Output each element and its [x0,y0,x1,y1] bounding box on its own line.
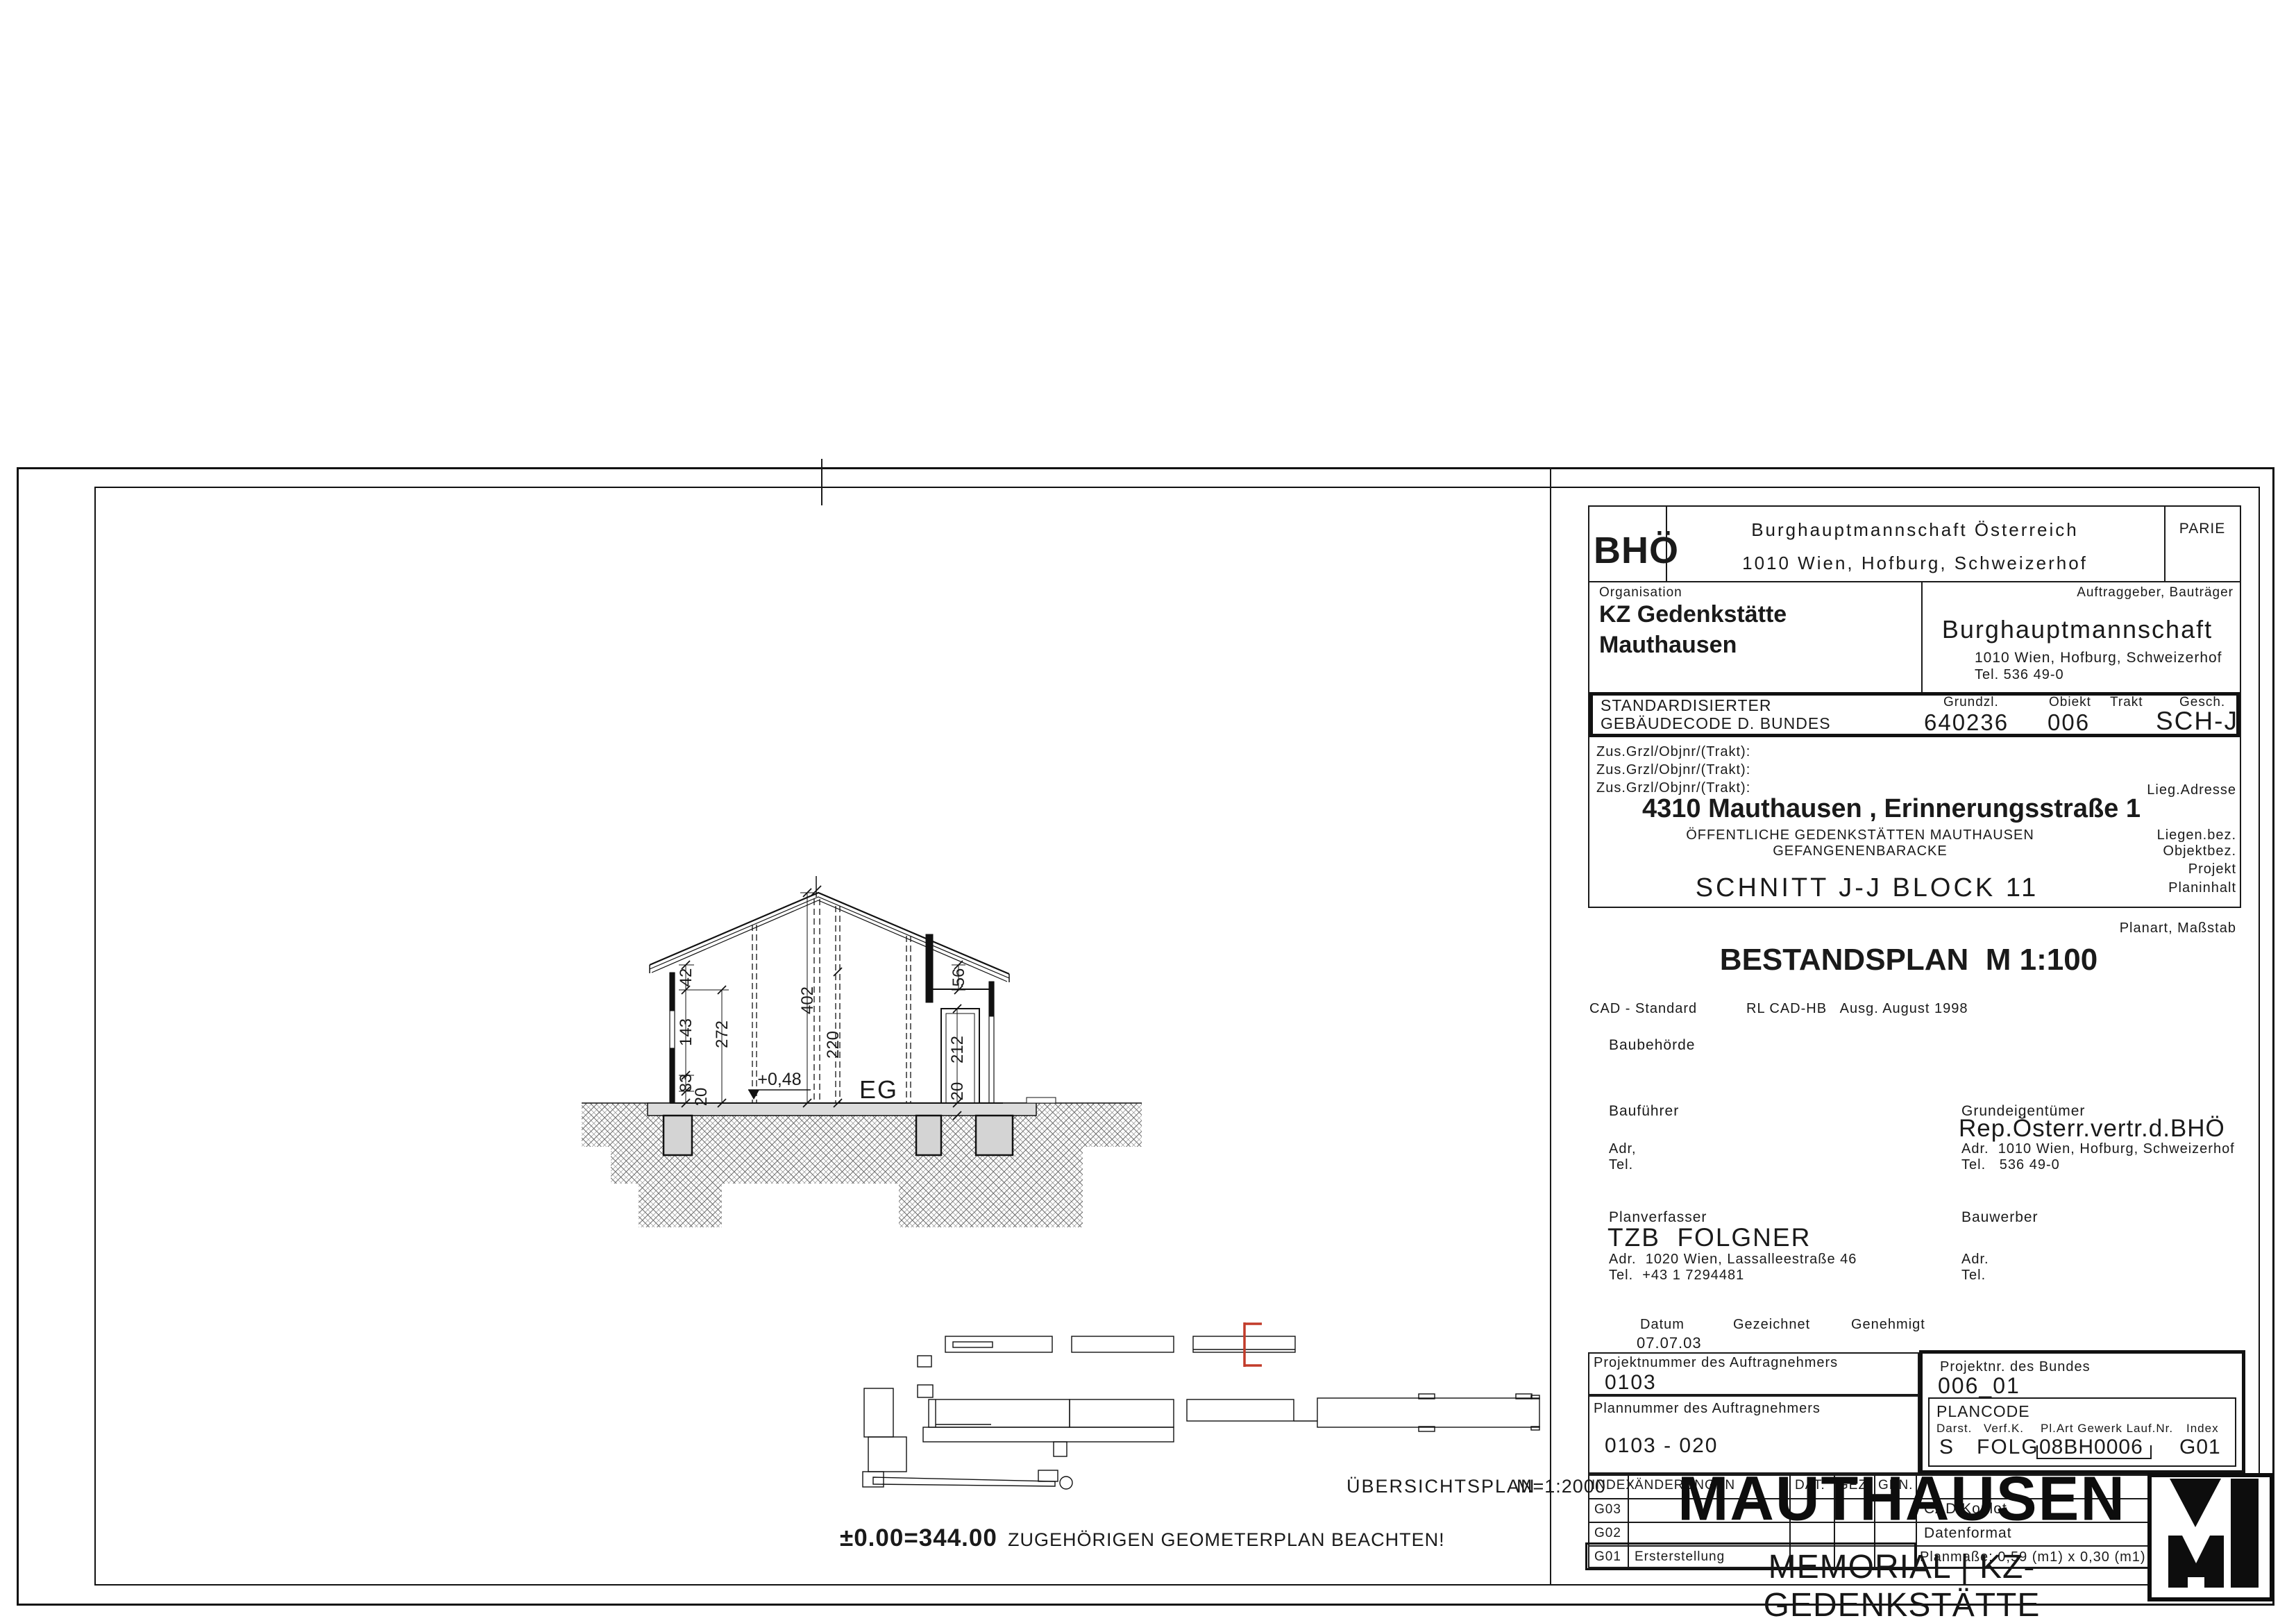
plancode-col-verfk: Verf.K. [1984,1422,2024,1436]
level-label: +0,48 [757,1070,801,1089]
dimension-lines [679,893,965,1116]
barrack-row-top [945,1336,1295,1352]
dim-143: 143 [677,1018,695,1046]
interior-wall [926,934,933,1002]
plancode-val-darst: S [1939,1436,1954,1459]
dim-402: 402 [798,986,817,1014]
grundeigentuemer-tel: Tel. 536 49-0 [1961,1157,2060,1173]
grundzl-label: Grundzl. [1943,695,1999,710]
projektnr-an-value: 0103 [1605,1371,1657,1395]
trakt-label: Trakt [2110,695,2143,710]
footing-left [664,1116,692,1155]
site-plan-level: ±0.00=344.00 [840,1524,997,1552]
dimension-labels: 42 143 83 20 272 402 220 56 212 20 +0,48… [677,968,968,1107]
planverfasser-tel: Tel. +43 1 7294481 [1609,1268,1744,1284]
dim-212: 212 [948,1036,967,1063]
baubehoerde-label: Baubehörde [1609,1037,1695,1054]
plancode-val-verfk: FOLG [1977,1436,2039,1459]
plan-sheet: 42 143 83 20 272 402 220 56 212 20 +0,48… [0,0,2296,1623]
storey-label: EG [859,1075,898,1104]
gesch-value: SCH-J [2156,707,2238,736]
plancode-underline [2036,1445,2152,1459]
bauwerber-label: Bauwerber [1961,1209,2038,1226]
logo-m-notch [2188,1577,2204,1588]
planinhalt-value: SCHNITT J-J BLOCK 11 [1631,873,2103,903]
site-plan-note: ZUGEHÖRIGEN GEOMETERPLAN BEACHTEN! [1008,1529,1445,1551]
zus-line-2: Zus.Grzl/Objnr/(Trakt): [1596,762,1750,778]
objekt-value: 006 [2048,709,2090,736]
datum-value: 07.07.03 [1637,1334,1702,1352]
grundzl-value: 640236 [1924,709,2009,736]
organisation-label: Organisation [1599,585,1682,600]
plannr-an-label: Plannummer des Auftragnehmers [1594,1401,1821,1417]
projektnr-an-label: Projektnummer des Auftragnehmers [1594,1355,1838,1371]
projekt-label: Projekt [2117,861,2236,877]
liegen-bez-label: Liegen.bez. [2117,827,2236,843]
code-label-1: STANDARDISIERTER [1601,696,1771,715]
gezeichnet-label: Gezeichnet [1733,1317,1810,1333]
planinhalt-label: Planinhalt [2117,880,2236,896]
zus-line-1: Zus.Grzl/Objnr/(Trakt): [1596,744,1750,760]
small-buildings [918,1356,1067,1456]
level-marker [748,1090,811,1100]
dim-272: 272 [713,1020,732,1048]
dim-56: 56 [949,968,968,987]
code-label-2: GEBÄUDECODE D. BUNDES [1601,714,1831,733]
section-cut-mark [1244,1322,1262,1367]
grundeigentuemer-adr: Adr. 1010 Wien, Hofburg, Schweizerhof [1961,1141,2235,1157]
plancode-col-index: Index [2186,1422,2219,1436]
site-plan-title: ÜBERSICHTSPLAN [1347,1476,1536,1497]
bho-org-line1: Burghauptmannschaft Österreich [1666,519,2164,541]
memorial-logo-wordmark: MAUTHAUSEN [1666,1463,2138,1535]
planverfasser-name: TZB FOLGNER [1607,1223,1811,1252]
property-address: 4310 Mauthausen , Erinnerungsstraße 1 [1596,794,2186,824]
plancode-label: PLANCODE [1936,1402,2030,1421]
table-row-g03: G03 [1594,1502,1621,1517]
footing-middle [916,1116,941,1155]
dim-20-right: 20 [948,1082,967,1101]
titleblock-row1-divider [1588,581,2241,582]
objekt-bez-value: GEFANGENENBARACKE [1596,843,2124,859]
roof-line-2 [650,897,1009,978]
bho-org-line2: 1010 Wien, Hofburg, Schweizerhof [1666,553,2164,574]
datum-label: Datum [1640,1317,1685,1333]
organisation-name-2: Mauthausen [1599,632,1737,659]
plancode-col-darst: Darst. [1936,1422,1972,1436]
logo-triangle [2170,1479,2221,1527]
baufuehrer-adr: Adr, [1609,1141,1637,1157]
baufuehrer-tel: Tel. [1609,1157,1633,1173]
table-row-g02: G02 [1594,1526,1621,1541]
plancode-val-index: G01 [2179,1436,2221,1459]
bauwerber-adr: Adr. [1961,1252,1989,1268]
parie-label: PARIE [2164,521,2240,537]
client-name: Burghauptmannschaft [1921,615,2234,644]
section-drawing: 42 143 83 20 272 402 220 56 212 20 +0,48… [569,861,1180,1263]
plancode-col-plart: Pl.Art Gewerk Lauf.Nr. [2041,1422,2173,1436]
projektnr-bund-value: 006_01 [1938,1373,2020,1399]
client-label: Auftraggeber, Bauträger [1921,585,2234,600]
bauwerber-tel: Tel. [1961,1268,1986,1284]
memorial-logo-subline: MEMORIAL | KZ-GEDENKSTÄTTE [1662,1548,2141,1623]
ground-step [1027,1098,1056,1103]
dimension-ticks [682,889,963,1120]
liegen-bez-value: ÖFFENTLICHE GEDENKSTÄTTEN MAUTHAUSEN [1596,827,2124,843]
parie-cell-divider [2164,505,2166,582]
planverfasser-adr: Adr. 1020 Wien, Lassalleestraße 46 [1609,1252,1857,1268]
grundeigentuemer-name: Rep.Österr.vertr.d.BHÖ [1959,1115,2225,1143]
objekt-bez-label: Objektbez. [2117,843,2236,859]
plannr-an-value: 0103 - 020 [1605,1434,1718,1458]
cad-standard-label: CAD - Standard [1589,1001,1697,1017]
baufuehrer-label: Bauführer [1609,1103,1679,1120]
organisation-name-1: KZ Gedenkstätte [1599,601,1787,628]
dim-220: 220 [824,1031,843,1059]
cad-richtlinie: RL CAD-HB Ausg. August 1998 [1746,1001,1968,1017]
planart-value: BESTANDSPLAN M 1:100 [1652,943,2166,977]
logo-bar [2231,1479,2259,1588]
footing-right [976,1116,1013,1155]
genehmigt-label: Genehmigt [1851,1317,1925,1333]
client-addr: 1010 Wien, Hofburg, Schweizerhof [1975,650,2222,666]
planart-label: Planart, Maßstab [2028,920,2236,936]
fold-mark [821,459,822,505]
dim-20-left: 20 [692,1088,711,1107]
table-header-index: INDEX [1592,1478,1635,1493]
l-shaped-building [863,1388,1072,1489]
memorial-logo-mark [2147,1473,2274,1601]
objekt-label: Obiekt [2049,695,2091,710]
main-building-complex [923,1394,1539,1442]
client-tel: Tel. 536 49-0 [1975,667,2064,683]
dim-42: 42 [677,968,695,987]
